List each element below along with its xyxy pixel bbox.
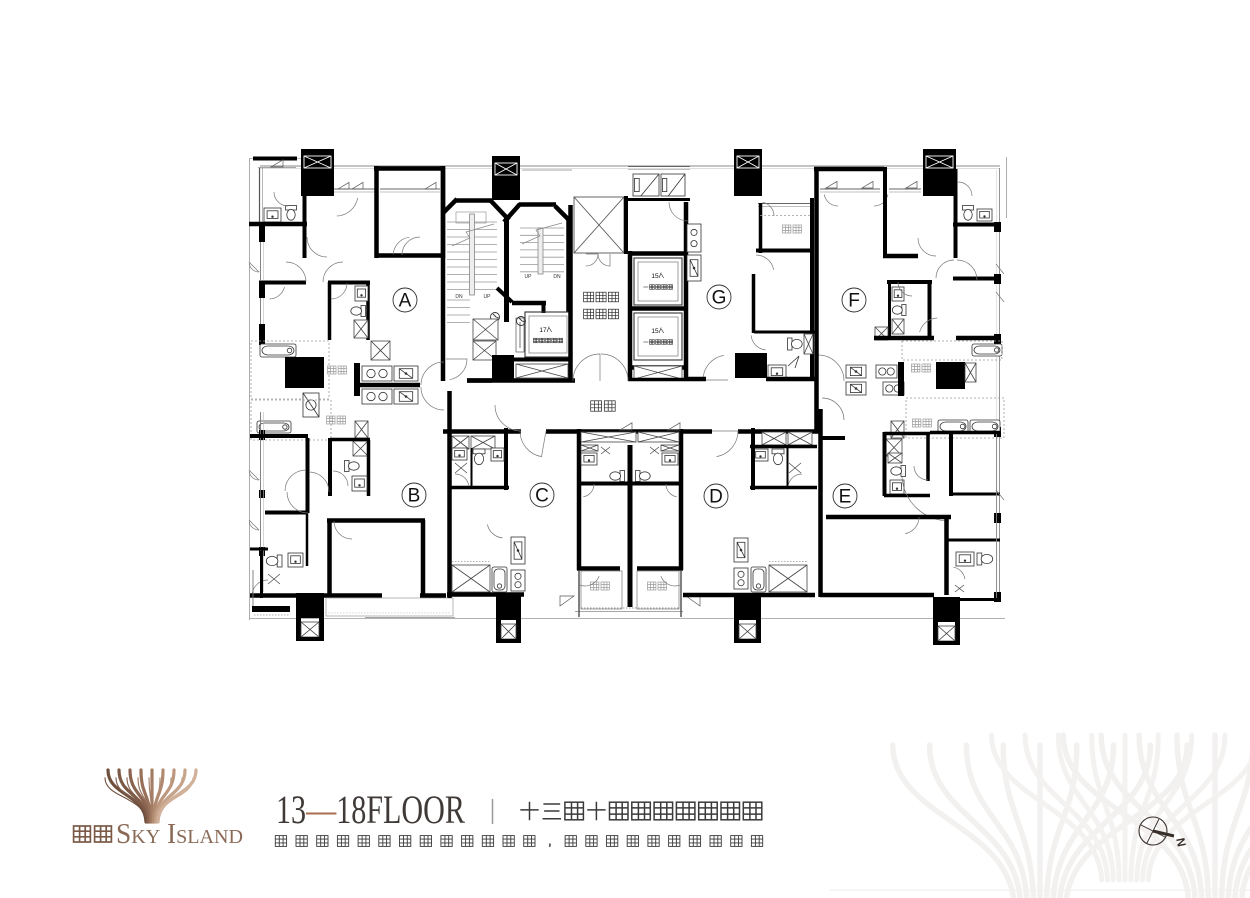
svg-text:DN: DN: [553, 274, 561, 280]
svg-text:F: F: [848, 291, 860, 312]
svg-text:UP: UP: [525, 274, 533, 280]
svg-text:17: 17: [539, 327, 547, 334]
svg-text:13—18FLOOR: 13—18FLOOR: [276, 787, 465, 832]
svg-text:D: D: [709, 487, 723, 508]
svg-text:DN: DN: [455, 294, 463, 300]
svg-text:15: 15: [651, 328, 659, 335]
svg-text:A: A: [399, 291, 412, 312]
svg-text:15: 15: [651, 273, 659, 280]
svg-text:B: B: [408, 486, 421, 507]
svg-text:E: E: [839, 487, 852, 508]
svg-text:G: G: [712, 288, 727, 309]
svg-text:C: C: [535, 486, 549, 507]
svg-text:UP: UP: [484, 294, 492, 300]
